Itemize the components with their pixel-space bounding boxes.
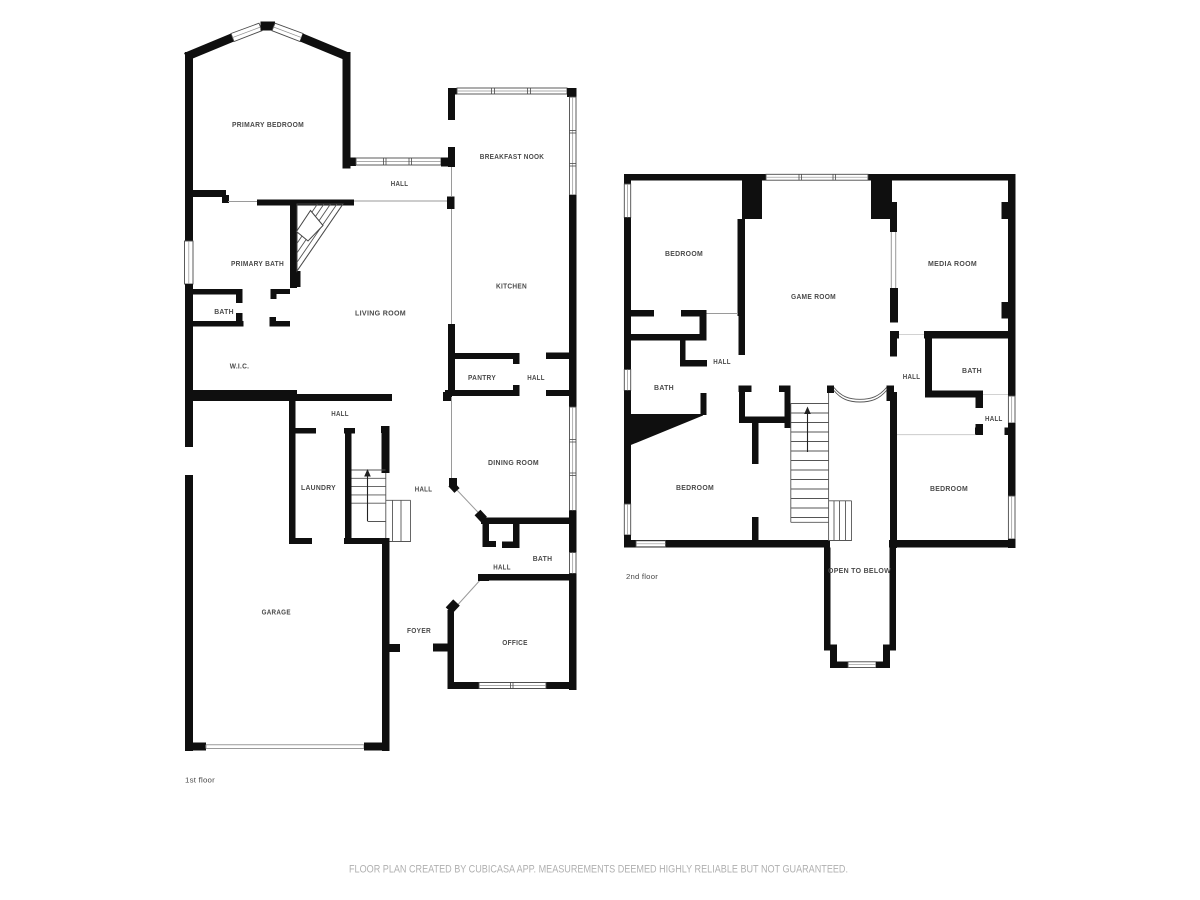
svg-text:2nd floor: 2nd floor [626,572,658,581]
svg-text:KITCHEN: KITCHEN [496,284,527,291]
svg-text:BATH: BATH [654,385,674,392]
svg-text:DINING ROOM: DINING ROOM [488,460,539,467]
svg-text:OPEN TO BELOW: OPEN TO BELOW [828,568,891,575]
svg-text:FLOOR PLAN CREATED BY CUBICASA: FLOOR PLAN CREATED BY CUBICASA APP. MEAS… [349,864,848,876]
svg-text:GARAGE: GARAGE [262,610,291,617]
svg-text:BATH: BATH [214,309,234,316]
svg-text:1st floor: 1st floor [185,776,215,785]
svg-text:GAME ROOM: GAME ROOM [791,294,836,301]
svg-text:HALL: HALL [391,181,409,188]
svg-text:HALL: HALL [527,375,545,382]
svg-text:PRIMARY BATH: PRIMARY BATH [231,261,284,268]
svg-text:BEDROOM: BEDROOM [665,251,703,258]
svg-text:HALL: HALL [985,416,1003,423]
svg-text:HALL: HALL [493,565,511,572]
svg-text:OFFICE: OFFICE [502,640,528,647]
svg-text:HALL: HALL [331,411,349,418]
svg-text:FOYER: FOYER [407,628,431,635]
svg-text:BEDROOM: BEDROOM [930,486,968,493]
svg-text:PANTRY: PANTRY [468,375,496,382]
svg-text:BATH: BATH [533,556,553,563]
svg-text:LIVING ROOM: LIVING ROOM [355,311,406,318]
svg-text:BEDROOM: BEDROOM [676,485,714,492]
svg-text:PRIMARY BEDROOM: PRIMARY BEDROOM [232,122,304,129]
svg-text:MEDIA ROOM: MEDIA ROOM [928,261,977,268]
svg-text:HALL: HALL [415,487,433,494]
svg-text:BATH: BATH [962,368,982,375]
svg-text:HALL: HALL [903,374,921,381]
svg-text:BREAKFAST NOOK: BREAKFAST NOOK [480,154,545,161]
svg-text:HALL: HALL [713,359,731,366]
svg-text:LAUNDRY: LAUNDRY [301,485,336,492]
svg-text:W.I.C.: W.I.C. [230,364,250,371]
